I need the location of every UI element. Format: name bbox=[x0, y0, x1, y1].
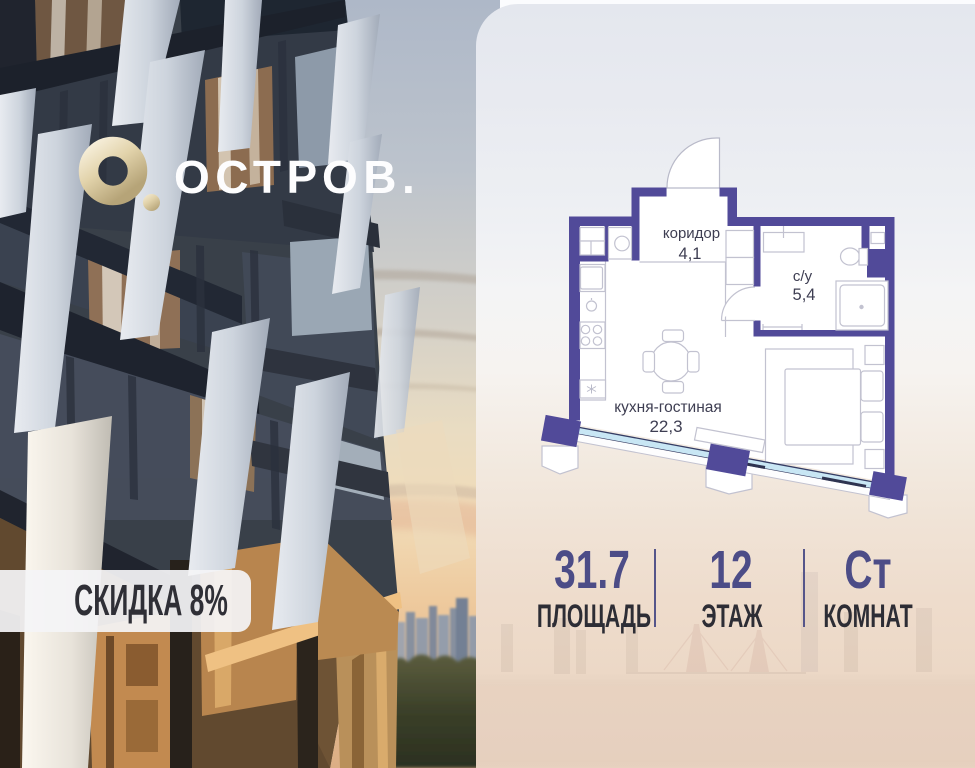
svg-text:22,3: 22,3 bbox=[649, 417, 682, 436]
svg-text:с/у: с/у bbox=[793, 268, 813, 285]
svg-text:кухня-гостиная: кухня-гостиная bbox=[614, 399, 722, 416]
svg-text:4,1: 4,1 bbox=[679, 245, 702, 263]
svg-text:коридор: коридор bbox=[663, 225, 720, 242]
svg-text:ОСТРОВ.: ОСТРОВ. bbox=[174, 151, 420, 203]
svg-text:5,4: 5,4 bbox=[793, 286, 816, 304]
